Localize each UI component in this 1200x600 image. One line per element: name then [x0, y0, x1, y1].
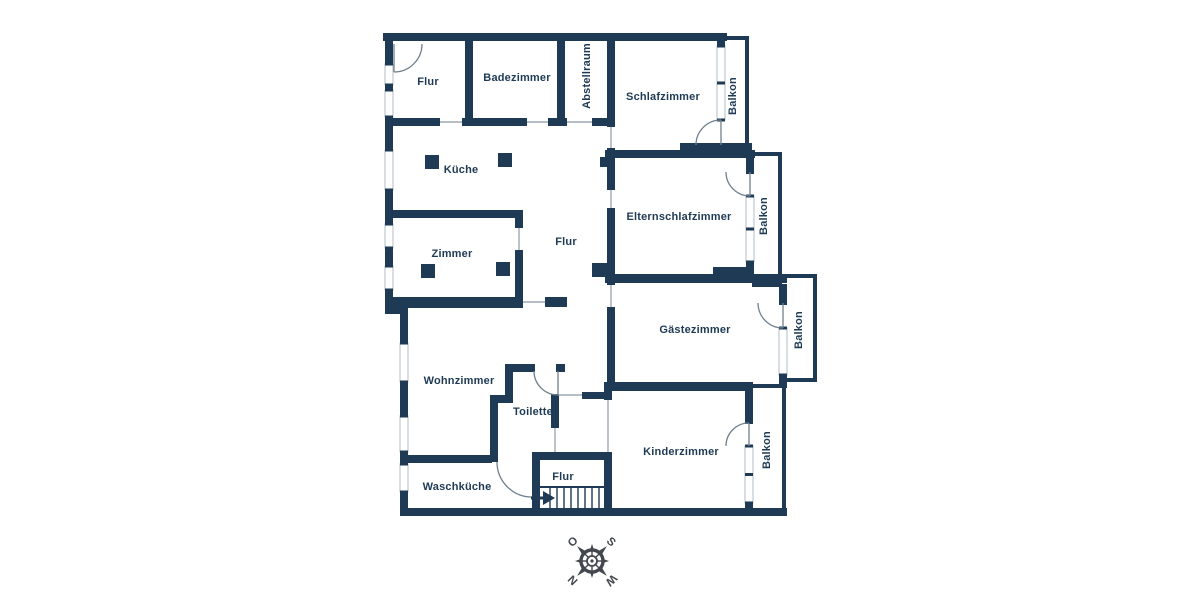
compass-wheel: NOSW [546, 515, 638, 600]
wall [465, 41, 473, 126]
wall [400, 508, 787, 516]
window-tick [400, 342, 408, 345]
door-swing-arc [726, 172, 750, 196]
window-tick [385, 149, 393, 152]
door-swing-arc [497, 462, 532, 497]
wall [582, 392, 604, 399]
floorplan-page: FlurBadezimmerAbstellraumSchlafzimmerBal… [0, 0, 1200, 600]
window-tick [385, 247, 393, 250]
door-swing-arc [696, 120, 721, 145]
window-tick [400, 491, 408, 494]
balcony-wall [813, 274, 817, 382]
wall [545, 297, 567, 307]
wall [592, 263, 607, 277]
balcony-wall [787, 274, 817, 278]
balcony-wall [752, 283, 782, 287]
room-label-balkon-schlafzimmer: Balkon [727, 77, 739, 115]
window-tick [717, 45, 725, 48]
pillar [496, 262, 510, 276]
balcony-wall [745, 36, 749, 148]
window-tick [385, 116, 393, 119]
room-label-toilette: Toilette [513, 406, 553, 418]
wall [383, 33, 727, 41]
room-label-waschkueche: Waschküche [423, 481, 492, 493]
wall [600, 157, 615, 167]
window [385, 150, 393, 190]
balcony-wall [778, 152, 782, 287]
wall [605, 382, 753, 391]
balcony-wall [755, 152, 782, 156]
room-label-balkon-gaeste: Balkon [793, 311, 805, 349]
wall [607, 41, 615, 127]
window-tick [400, 415, 408, 418]
window-tick [400, 463, 408, 466]
wall [385, 210, 523, 218]
window-tick [746, 228, 754, 231]
wall [400, 455, 492, 463]
wall [490, 395, 498, 462]
wall [604, 452, 612, 516]
door-swing-arc [534, 371, 558, 395]
window [385, 90, 393, 117]
balcony-wall [753, 384, 787, 388]
wall [556, 364, 565, 372]
wall [604, 382, 612, 400]
wall [605, 274, 787, 283]
room-label-flur-mitte: Flur [555, 236, 577, 248]
room-label-flur-unten: Flur [552, 471, 574, 483]
wall [515, 218, 523, 228]
window [400, 416, 408, 452]
wall [557, 41, 565, 126]
window-tick [385, 89, 393, 92]
window [779, 328, 787, 375]
wall [779, 284, 787, 305]
wall [746, 158, 754, 174]
wall [713, 267, 753, 282]
room-label-schlafzimmer: Schlafzimmer [626, 91, 700, 103]
window [400, 343, 408, 382]
window-tick [385, 265, 393, 268]
window-tick [385, 289, 393, 292]
room-label-wohnzimmer: Wohnzimmer [424, 375, 495, 387]
wall [532, 452, 612, 460]
door-swing-arc [758, 303, 783, 328]
room-label-elternschlafzimmer: Elternschlafzimmer [626, 211, 732, 223]
pillar [425, 155, 439, 169]
balcony-wall [782, 384, 786, 512]
window-tick [385, 223, 393, 226]
wall [745, 503, 753, 516]
wall [745, 391, 753, 424]
room-label-flur-oben: Flur [417, 76, 439, 88]
wall [393, 118, 440, 126]
window-tick [746, 261, 754, 264]
room-label-kueche: Küche [444, 164, 479, 176]
wall [548, 118, 567, 126]
window-tick [385, 63, 393, 66]
room-label-balkon-eltern: Balkon [758, 197, 770, 235]
window-tick [717, 82, 725, 85]
window-tick [745, 502, 753, 505]
room-label-badezimmer: Badezimmer [483, 72, 551, 84]
window [385, 224, 393, 248]
wall [607, 208, 615, 285]
window [385, 64, 393, 85]
window-tick [745, 473, 753, 476]
compass-rose: NOSW [546, 515, 638, 600]
window [400, 464, 408, 492]
wall [532, 452, 540, 516]
wall [607, 307, 615, 390]
pillar [498, 153, 512, 167]
window [385, 266, 393, 290]
window-tick [385, 189, 393, 192]
window-tick [400, 451, 408, 454]
floorplan-drawing: FlurBadezimmerAbstellraumSchlafzimmerBal… [0, 0, 1200, 600]
door-swing-arc [726, 423, 749, 446]
room-label-gaestezimmer: Gästezimmer [659, 324, 731, 336]
wall [515, 250, 523, 307]
window-tick [779, 374, 787, 377]
wall [385, 297, 523, 308]
window-tick [400, 381, 408, 384]
room-label-zimmer: Zimmer [432, 248, 473, 260]
door-swing-arc [394, 44, 422, 72]
wall [462, 118, 527, 126]
window-tick [385, 84, 393, 87]
room-label-abstellraum: Abstellraum [581, 43, 593, 109]
room-label-kinderzimmer: Kinderzimmer [643, 446, 719, 458]
pillar [421, 264, 435, 278]
room-label-balkon-kinder: Balkon [761, 431, 773, 469]
balcony-wall [722, 36, 749, 40]
stairs-arrow-head [543, 491, 555, 505]
balcony-wall [787, 378, 817, 382]
